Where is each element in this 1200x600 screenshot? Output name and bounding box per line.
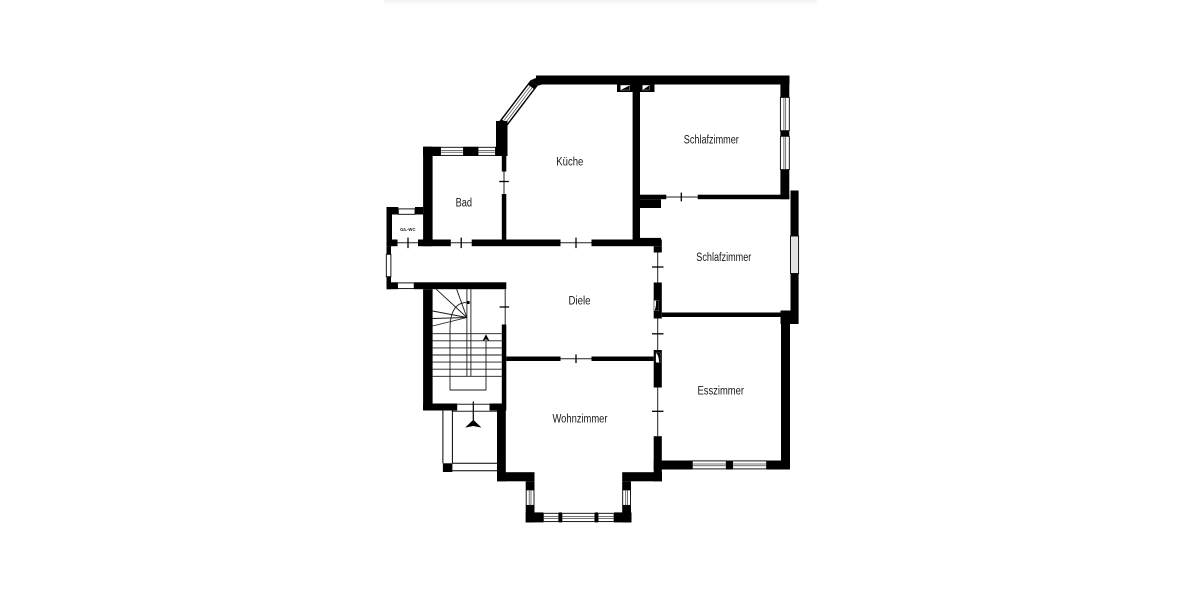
svg-text:Schlafzimmer: Schlafzimmer — [684, 135, 739, 147]
svg-text:Bad: Bad — [456, 197, 473, 209]
svg-text:Esszimmer: Esszimmer — [698, 386, 745, 398]
svg-text:Gä.-WC: Gä.-WC — [400, 227, 416, 233]
svg-text:Schlafzimmer: Schlafzimmer — [696, 252, 751, 264]
svg-text:Küche: Küche — [556, 157, 583, 169]
svg-text:Wohnzimmer: Wohnzimmer — [553, 413, 608, 425]
svg-text:Diele: Diele — [569, 295, 591, 307]
